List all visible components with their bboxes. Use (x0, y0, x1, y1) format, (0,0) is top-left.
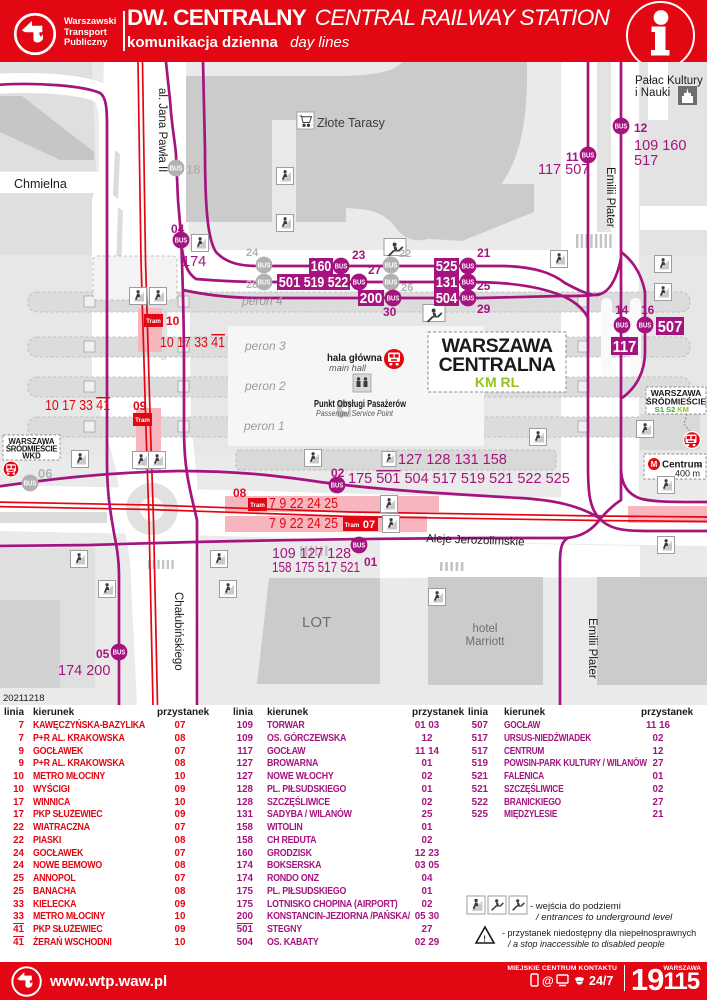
svg-text:200: 200 (360, 290, 383, 307)
svg-text:BUS: BUS (462, 264, 475, 271)
svg-text:BUS: BUS (387, 296, 400, 303)
svg-text:BUS: BUS (462, 280, 475, 287)
svg-text:Tram: Tram (250, 502, 265, 509)
svg-text:127 128 131 158: 127 128 131 158 (398, 452, 507, 468)
svg-text:517: 517 (634, 153, 658, 169)
svg-text:Pałac Kultury: Pałac Kultury (635, 75, 703, 87)
svg-text:i Nauki: i Nauki (635, 87, 670, 99)
svg-text:08: 08 (233, 486, 247, 500)
svg-text:14: 14 (615, 303, 629, 317)
svg-text:06: 06 (38, 466, 52, 481)
svg-text:27: 27 (368, 263, 382, 277)
svg-text:BUS: BUS (175, 238, 188, 245)
svg-text:400 m: 400 m (675, 469, 700, 479)
svg-text:BUS: BUS (24, 481, 37, 488)
svg-text:S1 S2: S1 S2 (655, 405, 676, 414)
svg-text:Emilii Plater: Emilii Plater (604, 167, 616, 228)
svg-text:peron 4: peron 4 (241, 294, 283, 308)
svg-text:/ entrances to underground lev: / entrances to underground level (535, 912, 673, 923)
svg-text:175 501 504 517 519 521 522 52: 175 501 504 517 519 521 522 525 (348, 471, 570, 487)
svg-text:24/7: 24/7 (589, 974, 613, 988)
svg-text:LOT: LOT (302, 614, 331, 631)
svg-text:04: 04 (171, 222, 185, 236)
svg-text:522: 522 (328, 274, 349, 291)
svg-text:Emilii Plater: Emilii Plater (586, 618, 598, 679)
svg-text:BUS: BUS (353, 280, 366, 287)
svg-text:10: 10 (166, 314, 180, 328)
svg-text:131: 131 (436, 274, 458, 291)
svg-text:BUS: BUS (170, 166, 183, 173)
svg-text:05: 05 (96, 647, 110, 661)
svg-text:20211218: 20211218 (3, 693, 45, 704)
svg-text:Chmielna: Chmielna (14, 177, 67, 191)
svg-text:BUS: BUS (639, 323, 652, 330)
svg-text:501: 501 (279, 274, 301, 291)
svg-text:peron 3: peron 3 (244, 339, 286, 353)
svg-text:BUS: BUS (353, 543, 366, 550)
svg-text:- wejścia do podziemi: - wejścia do podziemi (530, 901, 621, 912)
svg-text:hotel: hotel (473, 623, 498, 635)
svg-text:26: 26 (401, 282, 413, 294)
svg-text:BUS: BUS (582, 153, 595, 160)
svg-text:22: 22 (399, 248, 411, 260)
svg-text:Złote Tarasy: Złote Tarasy (317, 116, 386, 130)
svg-text:09: 09 (133, 399, 147, 413)
svg-text:main hall: main hall (329, 363, 367, 373)
svg-text:158 175 517 521: 158 175 517 521 (272, 560, 360, 576)
svg-text:28: 28 (246, 279, 258, 291)
svg-text:29: 29 (477, 302, 491, 316)
svg-text:BUS: BUS (385, 280, 398, 287)
svg-text:BUS: BUS (258, 280, 271, 287)
svg-text:21: 21 (477, 246, 491, 260)
svg-text:KM RL: KM RL (475, 374, 520, 390)
svg-text:CENTRALNA: CENTRALNA (439, 354, 556, 376)
svg-text:117: 117 (613, 339, 637, 356)
svg-text:01: 01 (364, 555, 378, 569)
svg-text:Tram: Tram (135, 417, 150, 424)
svg-text:!: ! (483, 935, 486, 944)
svg-text:BUS: BUS (113, 650, 126, 657)
svg-text:30: 30 (383, 305, 397, 319)
svg-text:174 200: 174 200 (58, 663, 110, 679)
svg-text:10 17 33 41: 10 17 33 41 (160, 335, 225, 351)
svg-text:Chałubińskiego: Chałubińskiego (172, 592, 184, 671)
svg-text:- przystanek niedostępny dla n: - przystanek niedostępny dla niepełnospr… (502, 928, 696, 938)
svg-text:117 507: 117 507 (538, 162, 589, 178)
svg-text:peron 2: peron 2 (244, 379, 286, 393)
svg-text:peron 1: peron 1 (243, 419, 285, 433)
svg-text:BUS: BUS (258, 263, 271, 270)
svg-text:25: 25 (477, 279, 491, 293)
svg-text:12: 12 (634, 121, 648, 135)
svg-text:M: M (651, 460, 658, 469)
svg-text:Passenger Service Point: Passenger Service Point (316, 408, 394, 418)
svg-text:525: 525 (436, 258, 458, 275)
svg-text:BUS: BUS (385, 263, 398, 270)
svg-text:BUS: BUS (615, 124, 628, 131)
svg-text:BUS: BUS (335, 264, 348, 271)
svg-text:507: 507 (658, 319, 683, 336)
svg-text:02: 02 (331, 466, 345, 480)
svg-text:@: @ (542, 974, 554, 988)
svg-text:23: 23 (352, 248, 366, 262)
svg-text:BUS: BUS (616, 323, 629, 330)
svg-text:07: 07 (363, 519, 375, 531)
svg-text:KM: KM (677, 405, 689, 414)
svg-text:10 17 33 41: 10 17 33 41 (45, 398, 110, 414)
svg-text:BUS: BUS (462, 296, 475, 303)
svg-text:174: 174 (182, 254, 206, 270)
svg-text:7 9 22 24 25: 7 9 22 24 25 (269, 516, 338, 532)
svg-text:Tram: Tram (146, 318, 161, 325)
svg-text:16: 16 (641, 303, 655, 317)
svg-text:BUS: BUS (331, 483, 344, 490)
svg-text:160: 160 (311, 258, 332, 275)
svg-text:Marriott: Marriott (466, 636, 506, 648)
svg-text:Tram: Tram (345, 522, 360, 529)
svg-text:al. Jana Pawła II: al. Jana Pawła II (156, 88, 168, 172)
svg-text:109 160: 109 160 (634, 138, 686, 154)
svg-text:24: 24 (246, 247, 259, 259)
svg-text:18: 18 (186, 162, 200, 177)
svg-text:7 9 22 24 25: 7 9 22 24 25 (269, 496, 338, 512)
svg-text:519: 519 (304, 274, 325, 291)
svg-text:504: 504 (436, 290, 458, 307)
svg-text:/ a stop inaccessible to disab: / a stop inaccessible to disabled people (507, 939, 665, 949)
svg-text:WKD: WKD (22, 452, 41, 461)
